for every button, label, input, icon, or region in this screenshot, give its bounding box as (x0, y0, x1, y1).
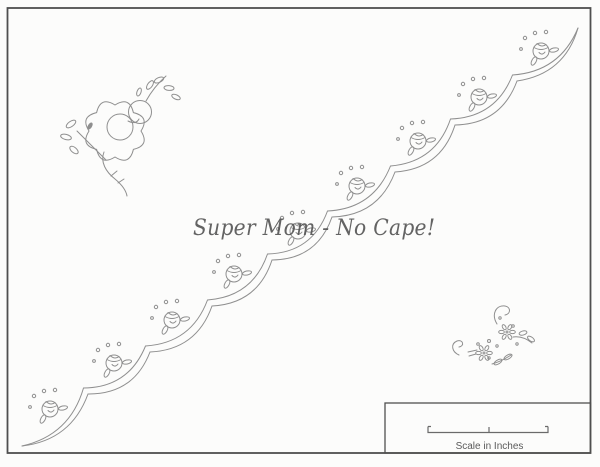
rosebud-motif (93, 342, 132, 378)
scanned-pattern-page: Super Mom - No Cape! Scale in Inches (0, 0, 600, 467)
rosebud-motif (151, 299, 190, 335)
watermark-text: Super Mom - No Cape! (193, 216, 435, 241)
rosebud-motif (336, 165, 375, 201)
scale-ruler-icon (428, 427, 548, 433)
rosebud-motif (458, 76, 497, 112)
corner-flower-motif (60, 76, 181, 196)
rosebud-motif (29, 388, 68, 424)
scatter-flower-motif (453, 306, 536, 366)
scale-label: Scale in Inches (429, 441, 550, 452)
daisy-1 (499, 324, 516, 340)
rosebud-motif (213, 253, 252, 289)
